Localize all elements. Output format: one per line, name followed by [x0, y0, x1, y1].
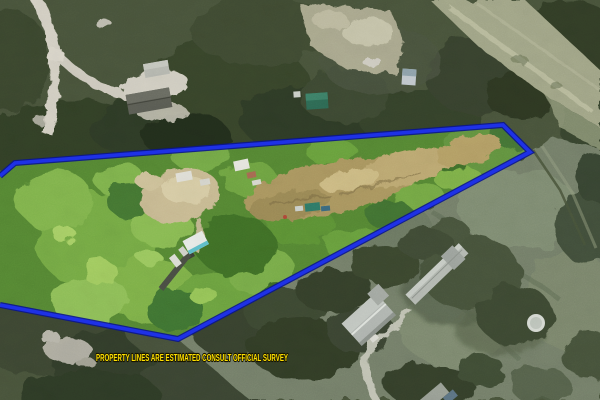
disclaimer-text: PROPERTY LINES ARE ESTIMATED CONSULT OFF… [96, 352, 288, 364]
grain-overlay [0, 0, 600, 400]
aerial-photo: PROPERTY LINES ARE ESTIMATED CONSULT OFF… [0, 0, 600, 400]
aerial-photo-canvas: PROPERTY LINES ARE ESTIMATED CONSULT OFF… [0, 0, 600, 400]
